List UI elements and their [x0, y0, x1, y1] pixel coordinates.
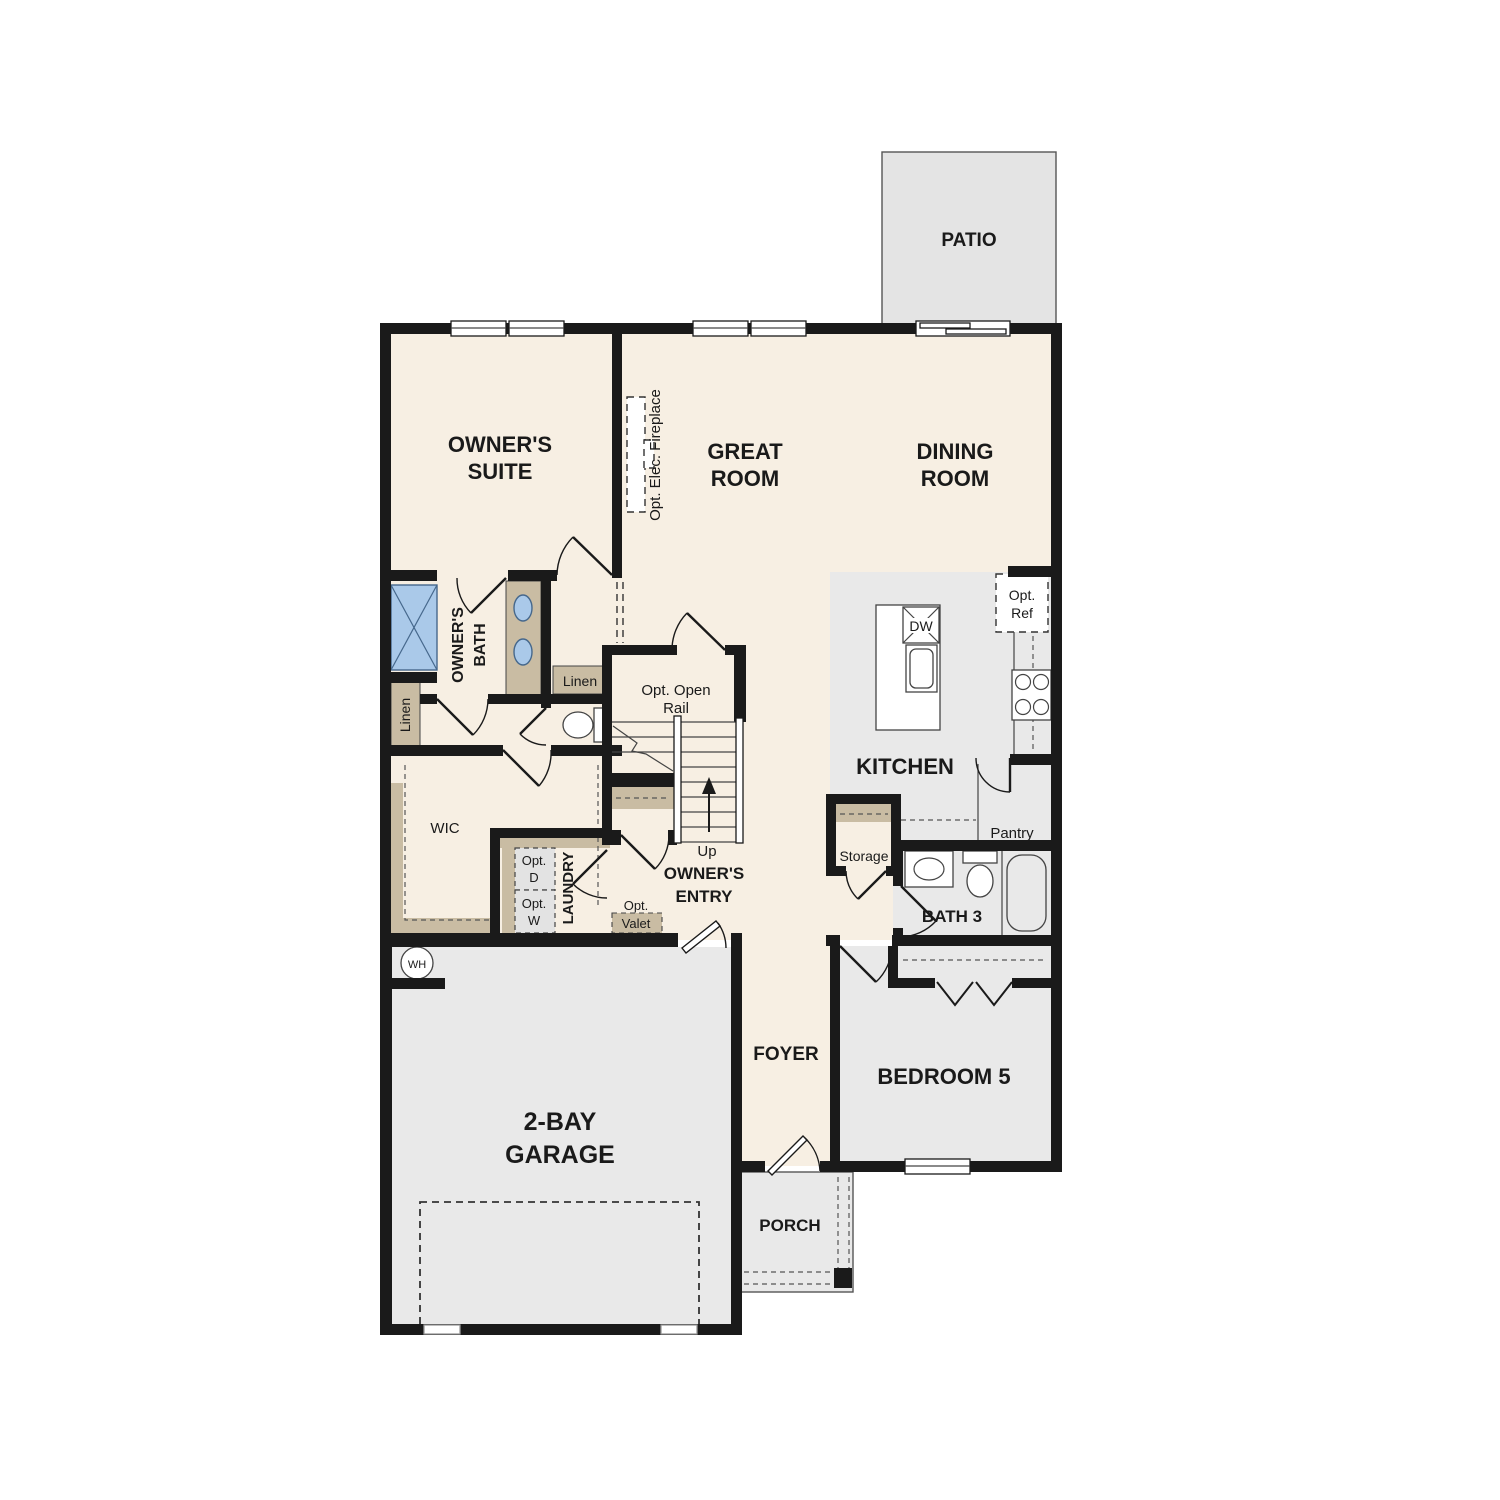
great-room-label-1: GREAT [707, 439, 783, 464]
stair-rail-left [674, 716, 681, 843]
garage-label-2: GARAGE [505, 1141, 615, 1169]
garage-label-1: 2-BAY [524, 1108, 597, 1136]
opt-valet-label-2: Valet [622, 916, 651, 931]
opt-ref-box [996, 574, 1048, 632]
floor-plan-page: PATIO OWNER'S SUITE GREAT ROOM DINING RO… [0, 0, 1500, 1500]
up-label: Up [697, 843, 716, 860]
opt-d-label-2: D [529, 870, 538, 885]
owners-bath-label-1: OWNER'S [450, 607, 467, 683]
opt-fireplace-box [627, 397, 645, 512]
laundry-counter-left [502, 848, 515, 933]
bath3-toilet-tank [963, 851, 997, 863]
island-sink-basin [910, 649, 933, 688]
laundry-label: LAUNDRY [560, 852, 577, 925]
storage-label: Storage [839, 848, 888, 864]
dining-room-label-1: DINING [917, 439, 994, 464]
bath3-label: BATH 3 [922, 907, 982, 926]
patio-label: PATIO [941, 230, 996, 251]
linen-bath-label: Linen [397, 698, 413, 732]
bath3-vanity [905, 851, 953, 887]
storage-shelf [836, 804, 891, 822]
dw-label: DW [909, 618, 933, 634]
porch-label: PORCH [759, 1216, 820, 1235]
dining-room-label-2: ROOM [921, 466, 989, 491]
vanity-sink-1 [514, 595, 532, 621]
bath3-toilet-bowl [967, 865, 993, 897]
opt-w-label-1: Opt. [522, 896, 547, 911]
owners-toilet-bowl [563, 712, 593, 738]
opt-fireplace-label: Opt. Elec. Fireplace [647, 389, 664, 521]
bedroom5-window [905, 1159, 970, 1174]
owners-suite-label-1: OWNER'S [448, 432, 552, 457]
opt-d-label-1: Opt. [522, 853, 547, 868]
opt-valet-label-1: Opt. [624, 898, 649, 913]
kitchen-label: KITCHEN [856, 754, 954, 779]
pantry-label: Pantry [990, 825, 1034, 842]
opt-w-label-2: W [528, 913, 541, 928]
owners-entry-label-1: OWNER'S [664, 864, 745, 883]
opt-open-rail-label-2: Rail [663, 700, 689, 717]
owners-entry-label-2: ENTRY [676, 887, 734, 906]
floor-plan-drawing: PATIO OWNER'S SUITE GREAT ROOM DINING RO… [0, 0, 1500, 1500]
bedroom5-label: BEDROOM 5 [877, 1064, 1010, 1089]
bath3-tub [1007, 855, 1046, 931]
great-room-label-2: ROOM [711, 466, 779, 491]
patio-sliding-door [916, 321, 1010, 336]
wic-label: WIC [430, 820, 459, 837]
linen-hall-label: Linen [563, 673, 597, 689]
wh-label: WH [408, 959, 426, 971]
garage-door-jamb-1 [424, 1325, 460, 1334]
wic-shelf-left [391, 783, 403, 933]
opt-ref-label-2: Ref [1011, 605, 1033, 621]
foyer-label: FOYER [753, 1044, 819, 1065]
opt-ref-label-1: Opt. [1009, 587, 1035, 603]
garage-door-jamb-2 [661, 1325, 697, 1334]
opt-open-rail-label-1: Opt. Open [641, 682, 710, 699]
owners-suite-label-2: SUITE [468, 459, 533, 484]
owners-bath-label-2: BATH [472, 623, 489, 666]
vanity-sink-2 [514, 639, 532, 665]
laundry-counter-top [500, 838, 610, 848]
stair-rail-right [736, 718, 743, 843]
